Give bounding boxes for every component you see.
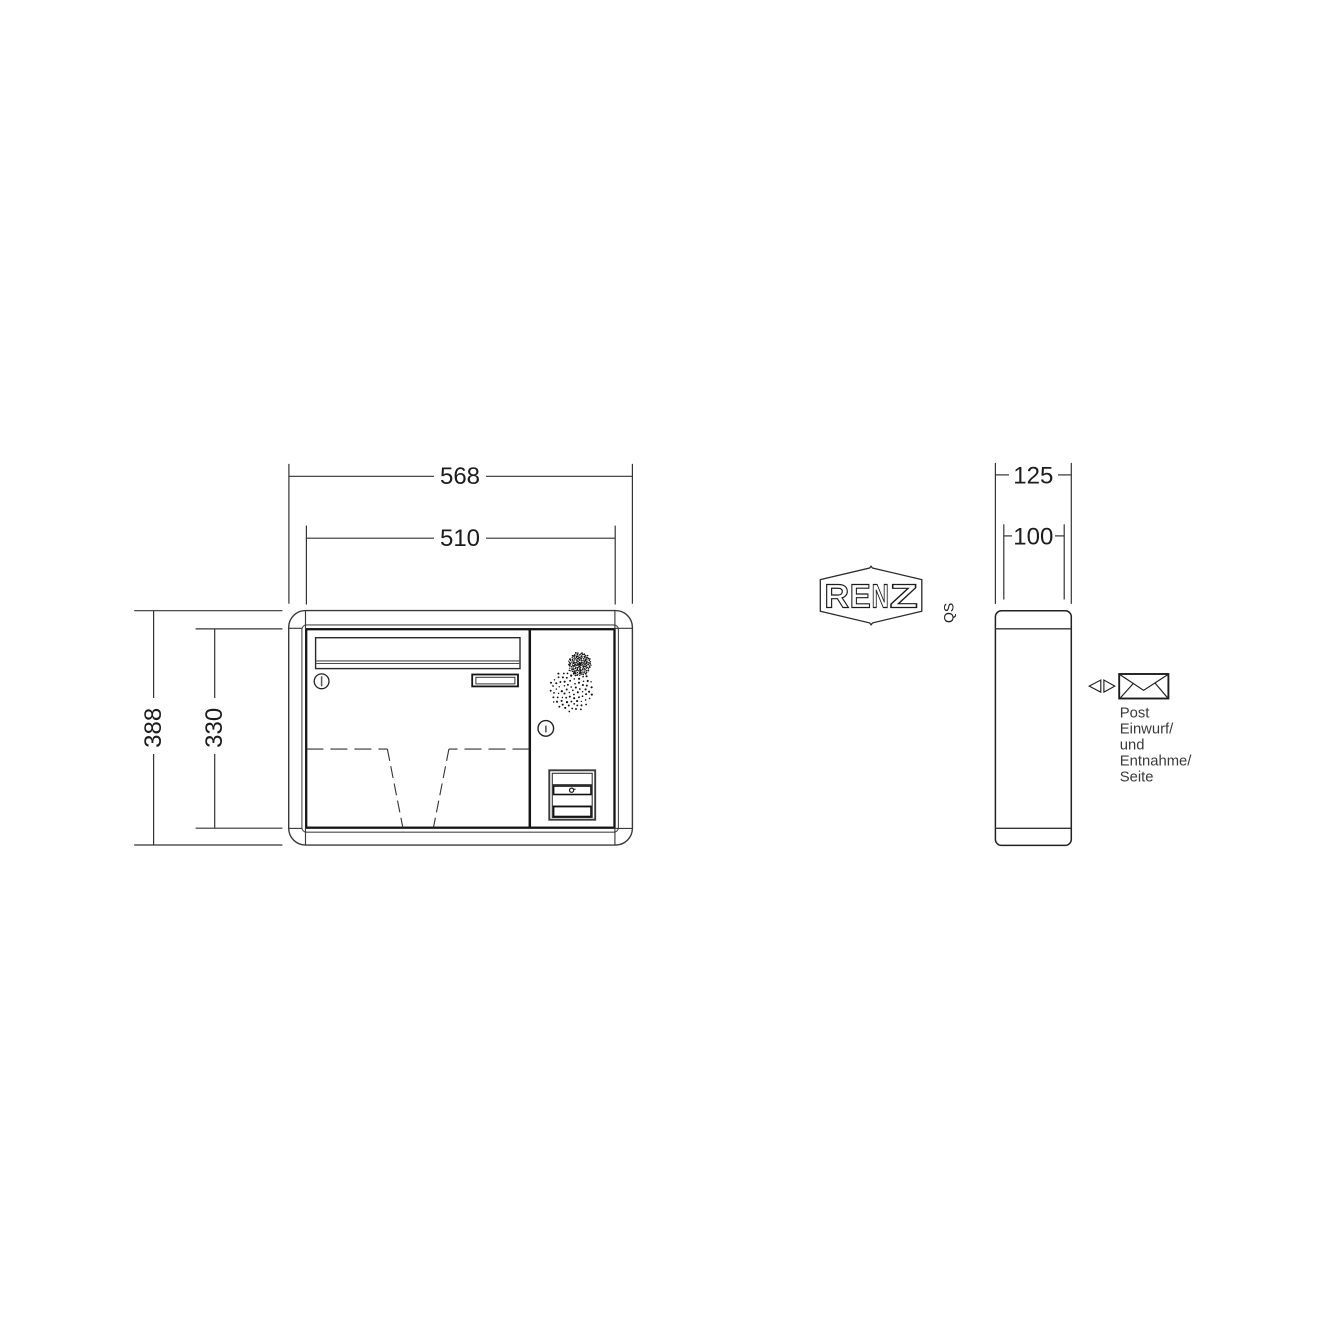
- svg-text:Seite: Seite: [1120, 769, 1154, 785]
- svg-text:125: 125: [1013, 463, 1053, 490]
- svg-text:100: 100: [1013, 524, 1053, 551]
- svg-text:QS: QS: [940, 603, 956, 623]
- svg-text:Entnahme/: Entnahme/: [1120, 753, 1192, 769]
- svg-text:E: E: [850, 579, 871, 616]
- svg-text:Post: Post: [1120, 705, 1150, 721]
- svg-text:Einwurf/: Einwurf/: [1120, 721, 1174, 737]
- svg-text:510: 510: [440, 525, 480, 552]
- svg-text:N: N: [872, 579, 889, 616]
- svg-text:330: 330: [201, 708, 228, 748]
- svg-text:388: 388: [140, 708, 167, 748]
- svg-text:R: R: [824, 579, 849, 616]
- svg-text:und: und: [1120, 737, 1145, 753]
- svg-text:568: 568: [440, 463, 480, 490]
- svg-text:Z: Z: [890, 579, 918, 616]
